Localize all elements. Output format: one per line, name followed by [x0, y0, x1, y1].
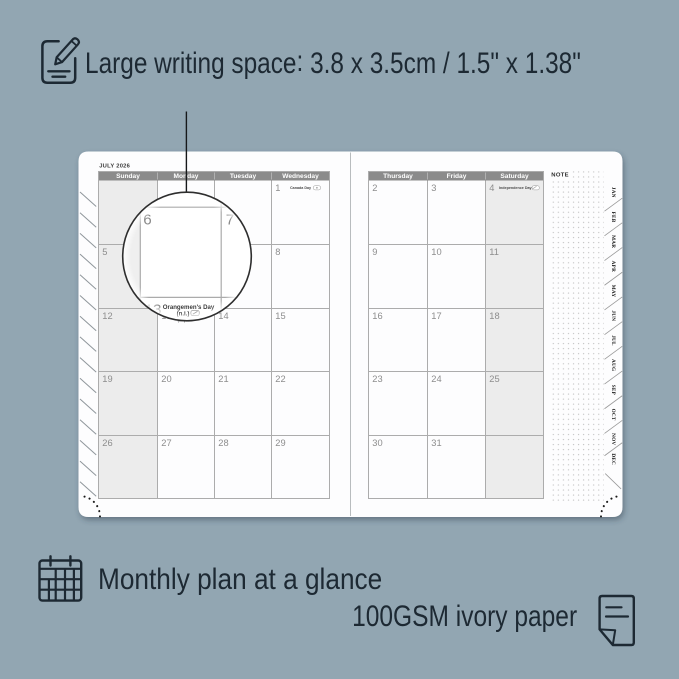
svg-text:16: 16 [372, 311, 382, 321]
svg-text:FEB: FEB [610, 212, 616, 223]
svg-text:29: 29 [275, 438, 285, 448]
svg-text:Sunday: Sunday [116, 173, 140, 180]
svg-text:27: 27 [161, 438, 171, 448]
svg-text:APR: APR [610, 261, 616, 272]
svg-text:NOV: NOV [610, 433, 616, 445]
svg-text:17: 17 [431, 311, 441, 321]
svg-text:25: 25 [489, 374, 499, 384]
svg-text:19: 19 [102, 374, 112, 384]
svg-text:1: 1 [275, 183, 280, 193]
svg-text:24: 24 [431, 374, 441, 384]
svg-text:Friday: Friday [447, 173, 467, 180]
svg-text:10: 10 [431, 247, 441, 257]
svg-text:MAY: MAY [610, 285, 616, 298]
svg-text:JULY 2026: JULY 2026 [99, 163, 130, 169]
svg-text:JAN: JAN [610, 187, 616, 198]
svg-text:Independence Day: Independence Day [499, 186, 533, 190]
svg-text:15: 15 [275, 311, 285, 321]
svg-text:JUN: JUN [610, 310, 616, 321]
svg-text:SEP: SEP [610, 385, 616, 396]
svg-text:2: 2 [372, 183, 377, 193]
svg-text:4: 4 [489, 183, 494, 193]
svg-text:Tuesday: Tuesday [230, 173, 257, 180]
svg-text:21: 21 [218, 374, 228, 384]
svg-text:18: 18 [489, 311, 499, 321]
svg-text:3: 3 [431, 183, 436, 193]
svg-text:30: 30 [372, 438, 382, 448]
svg-text:DEC: DEC [610, 453, 616, 465]
svg-text:11: 11 [489, 247, 499, 257]
svg-text:23: 23 [372, 374, 382, 384]
svg-text:NOTE: NOTE [551, 172, 569, 178]
svg-text:22: 22 [275, 374, 285, 384]
svg-text:AUG: AUG [610, 359, 616, 371]
svg-text:31: 31 [431, 438, 441, 448]
svg-text:5: 5 [102, 247, 107, 257]
svg-text:28: 28 [218, 438, 228, 448]
svg-text:JUL: JUL [610, 335, 616, 346]
svg-text:Canada Day: Canada Day [290, 186, 312, 190]
svg-text:8: 8 [275, 247, 280, 257]
svg-text:Wednesday: Wednesday [282, 173, 319, 180]
svg-text:20: 20 [161, 374, 171, 384]
svg-text:12: 12 [102, 311, 112, 321]
svg-text:MAR: MAR [610, 235, 616, 248]
svg-text:Saturday: Saturday [500, 173, 529, 180]
svg-text:9: 9 [372, 247, 377, 257]
svg-text:OCT: OCT [610, 409, 616, 421]
svg-text:26: 26 [102, 438, 112, 448]
svg-text:Thursday: Thursday [383, 173, 413, 180]
